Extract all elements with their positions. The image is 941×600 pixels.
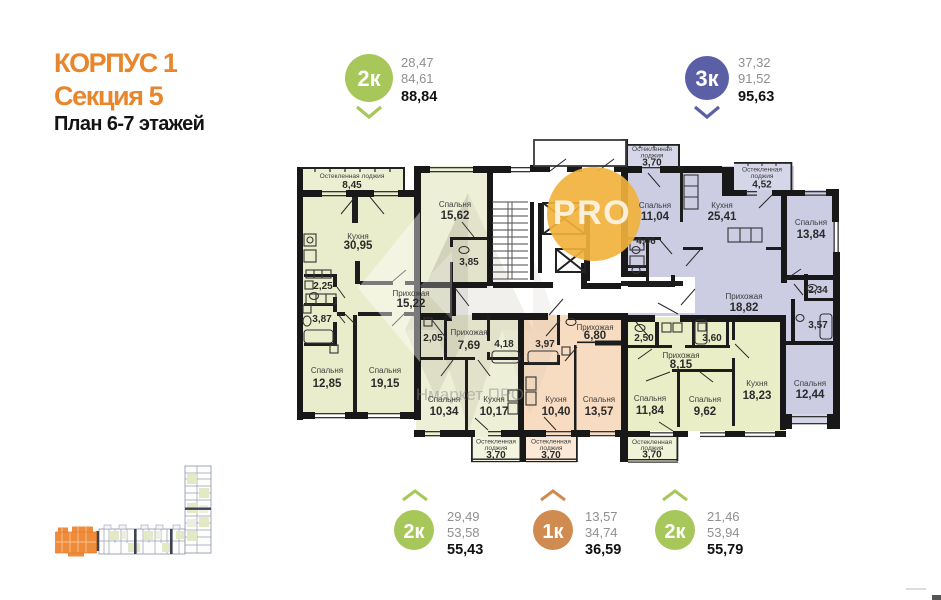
svg-text:8,45: 8,45 [342,180,362,191]
svg-text:Кухня: Кухня [746,379,767,388]
svg-text:3,87: 3,87 [312,314,332,325]
svg-text:10,34: 10,34 [430,406,459,418]
svg-text:2,50: 2,50 [634,333,654,344]
svg-text:2к: 2к [403,521,425,543]
svg-text:10,40: 10,40 [542,406,571,418]
svg-text:12,85: 12,85 [313,378,342,390]
svg-text:15,62: 15,62 [441,210,470,222]
svg-text:15,22: 15,22 [397,298,426,310]
svg-text:Кухня: Кухня [711,201,732,210]
svg-text:4,06: 4,06 [636,236,656,247]
svg-text:3,85: 3,85 [459,257,479,268]
svg-text:19,15: 19,15 [371,378,400,390]
svg-text:Кухня: Кухня [483,395,504,404]
svg-text:Спальня: Спальня [311,366,343,375]
svg-text:29,49: 29,49 [447,509,480,524]
svg-text:4,18: 4,18 [494,339,514,350]
svg-text:88,84: 88,84 [401,89,437,105]
svg-text:10,17: 10,17 [480,406,509,418]
svg-text:53,94: 53,94 [707,525,740,540]
svg-text:13,57: 13,57 [585,509,618,524]
svg-text:30,95: 30,95 [344,240,373,252]
svg-text:3к: 3к [695,66,719,91]
svg-text:3,70: 3,70 [642,450,662,461]
svg-text:Прихожая: Прихожая [450,328,487,337]
svg-text:84,61: 84,61 [401,71,434,86]
svg-text:11,84: 11,84 [636,405,665,417]
svg-text:2к: 2к [664,521,686,543]
svg-text:25,41: 25,41 [708,211,737,223]
svg-text:Спальня: Спальня [369,366,401,375]
svg-text:4,52: 4,52 [752,180,772,191]
svg-text:18,82: 18,82 [730,302,759,314]
svg-text:9,62: 9,62 [694,406,716,418]
svg-text:37,32: 37,32 [738,55,771,70]
svg-text:Спальня: Спальня [428,395,460,404]
svg-text:Прихожая: Прихожая [392,289,429,298]
svg-text:95,63: 95,63 [738,89,774,105]
svg-text:Спальня: Спальня [639,201,671,210]
svg-text:53,58: 53,58 [447,525,480,540]
svg-text:2,34: 2,34 [808,285,828,296]
svg-text:2,05: 2,05 [423,333,443,344]
svg-text:28,47: 28,47 [401,55,434,70]
svg-text:55,79: 55,79 [707,542,743,558]
svg-text:Спальня: Спальня [634,394,666,403]
svg-text:3,70: 3,70 [486,450,506,461]
svg-text:1к: 1к [542,521,564,543]
svg-text:55,43: 55,43 [447,542,483,558]
svg-text:91,52: 91,52 [738,71,771,86]
svg-text:План 6-7 этажей: План 6-7 этажей [54,113,204,135]
svg-text:Прихожая: Прихожая [725,292,762,301]
svg-text:Спальня: Спальня [689,395,721,404]
svg-text:2к: 2к [357,66,381,91]
svg-text:7,69: 7,69 [458,340,480,352]
svg-text:3,70: 3,70 [541,450,561,461]
svg-text:6,80: 6,80 [584,330,606,342]
svg-text:3,97: 3,97 [535,339,555,350]
svg-text:13,84: 13,84 [797,229,826,241]
svg-text:11,04: 11,04 [641,211,670,223]
svg-text:3,60: 3,60 [702,333,722,344]
svg-text:Секция 5: Секция 5 [54,81,164,111]
svg-text:34,74: 34,74 [585,525,618,540]
svg-text:3,70: 3,70 [642,158,662,169]
svg-text:36,59: 36,59 [585,542,621,558]
svg-text:18,23: 18,23 [743,390,772,402]
svg-text:3,57: 3,57 [808,320,828,331]
svg-text:Спальня: Спальня [439,200,471,209]
svg-text:13,57: 13,57 [585,406,614,418]
svg-text:2,25: 2,25 [313,281,333,292]
svg-text:PRO: PRO [553,194,631,232]
svg-text:Кухня: Кухня [545,395,566,404]
svg-text:12,44: 12,44 [796,389,825,401]
svg-text:Спальня: Спальня [794,379,826,388]
svg-text:КОРПУС 1: КОРПУС 1 [54,48,178,78]
svg-text:21,46: 21,46 [707,509,740,524]
svg-text:Спальня: Спальня [795,218,827,227]
svg-text:Остекленная лоджия: Остекленная лоджия [320,173,385,180]
svg-text:Спальня: Спальня [583,395,615,404]
svg-text:8,15: 8,15 [670,359,693,371]
